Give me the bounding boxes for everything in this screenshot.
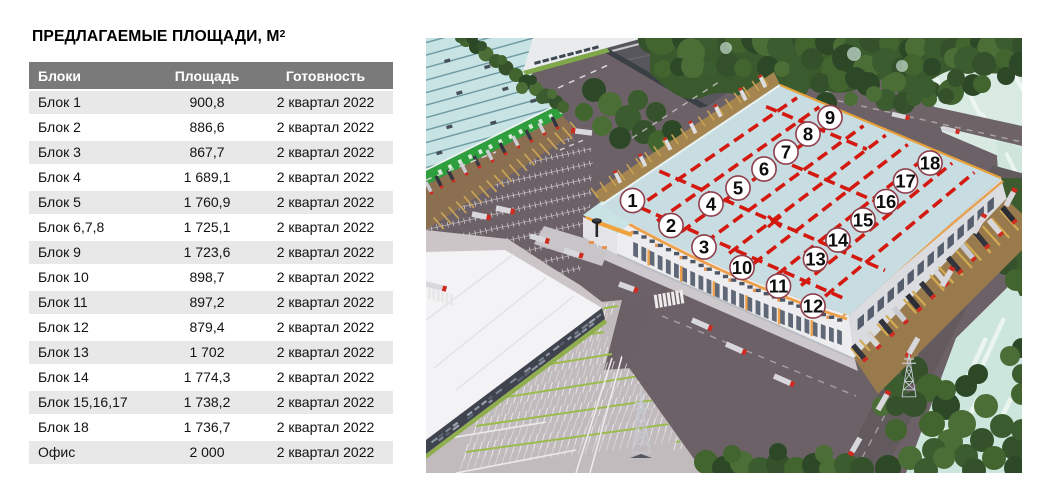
svg-text:16: 16 xyxy=(876,191,897,212)
svg-text:11: 11 xyxy=(769,276,789,297)
svg-text:7: 7 xyxy=(781,142,791,163)
svg-text:3: 3 xyxy=(699,237,709,258)
svg-text:15: 15 xyxy=(853,210,874,231)
svg-text:17: 17 xyxy=(895,171,916,192)
svg-text:13: 13 xyxy=(805,249,826,270)
svg-text:18: 18 xyxy=(920,153,941,174)
svg-text:12: 12 xyxy=(803,296,824,317)
svg-text:1: 1 xyxy=(627,190,637,211)
svg-text:9: 9 xyxy=(825,107,835,128)
svg-text:4: 4 xyxy=(706,194,717,215)
svg-text:14: 14 xyxy=(828,230,849,251)
svg-text:5: 5 xyxy=(733,178,743,199)
svg-text:6: 6 xyxy=(759,159,769,180)
svg-text:10: 10 xyxy=(732,257,753,278)
svg-text:2: 2 xyxy=(666,215,676,236)
svg-text:8: 8 xyxy=(803,124,813,145)
